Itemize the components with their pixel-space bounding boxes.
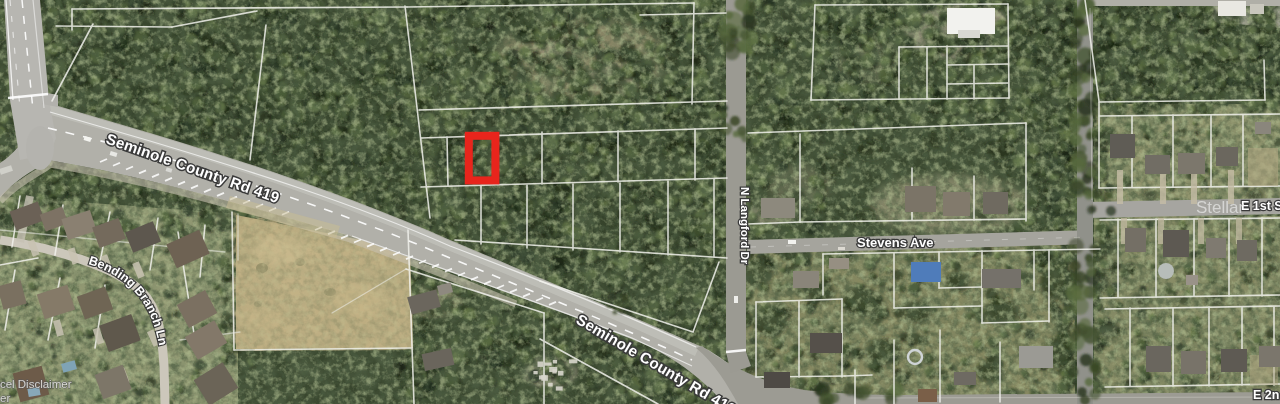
svg-text:E 1st St: E 1st St xyxy=(1241,199,1280,213)
svg-text:Stellar: Stellar xyxy=(1196,198,1245,217)
svg-text:er: er xyxy=(0,392,10,404)
svg-text:Stevens Ave: Stevens Ave xyxy=(857,235,933,250)
svg-text:Parcel Disclaimer: Parcel Disclaimer xyxy=(0,378,72,390)
svg-text:E 2nd St: E 2nd St xyxy=(1253,388,1280,402)
svg-text:N Langford Dr: N Langford Dr xyxy=(739,187,751,265)
